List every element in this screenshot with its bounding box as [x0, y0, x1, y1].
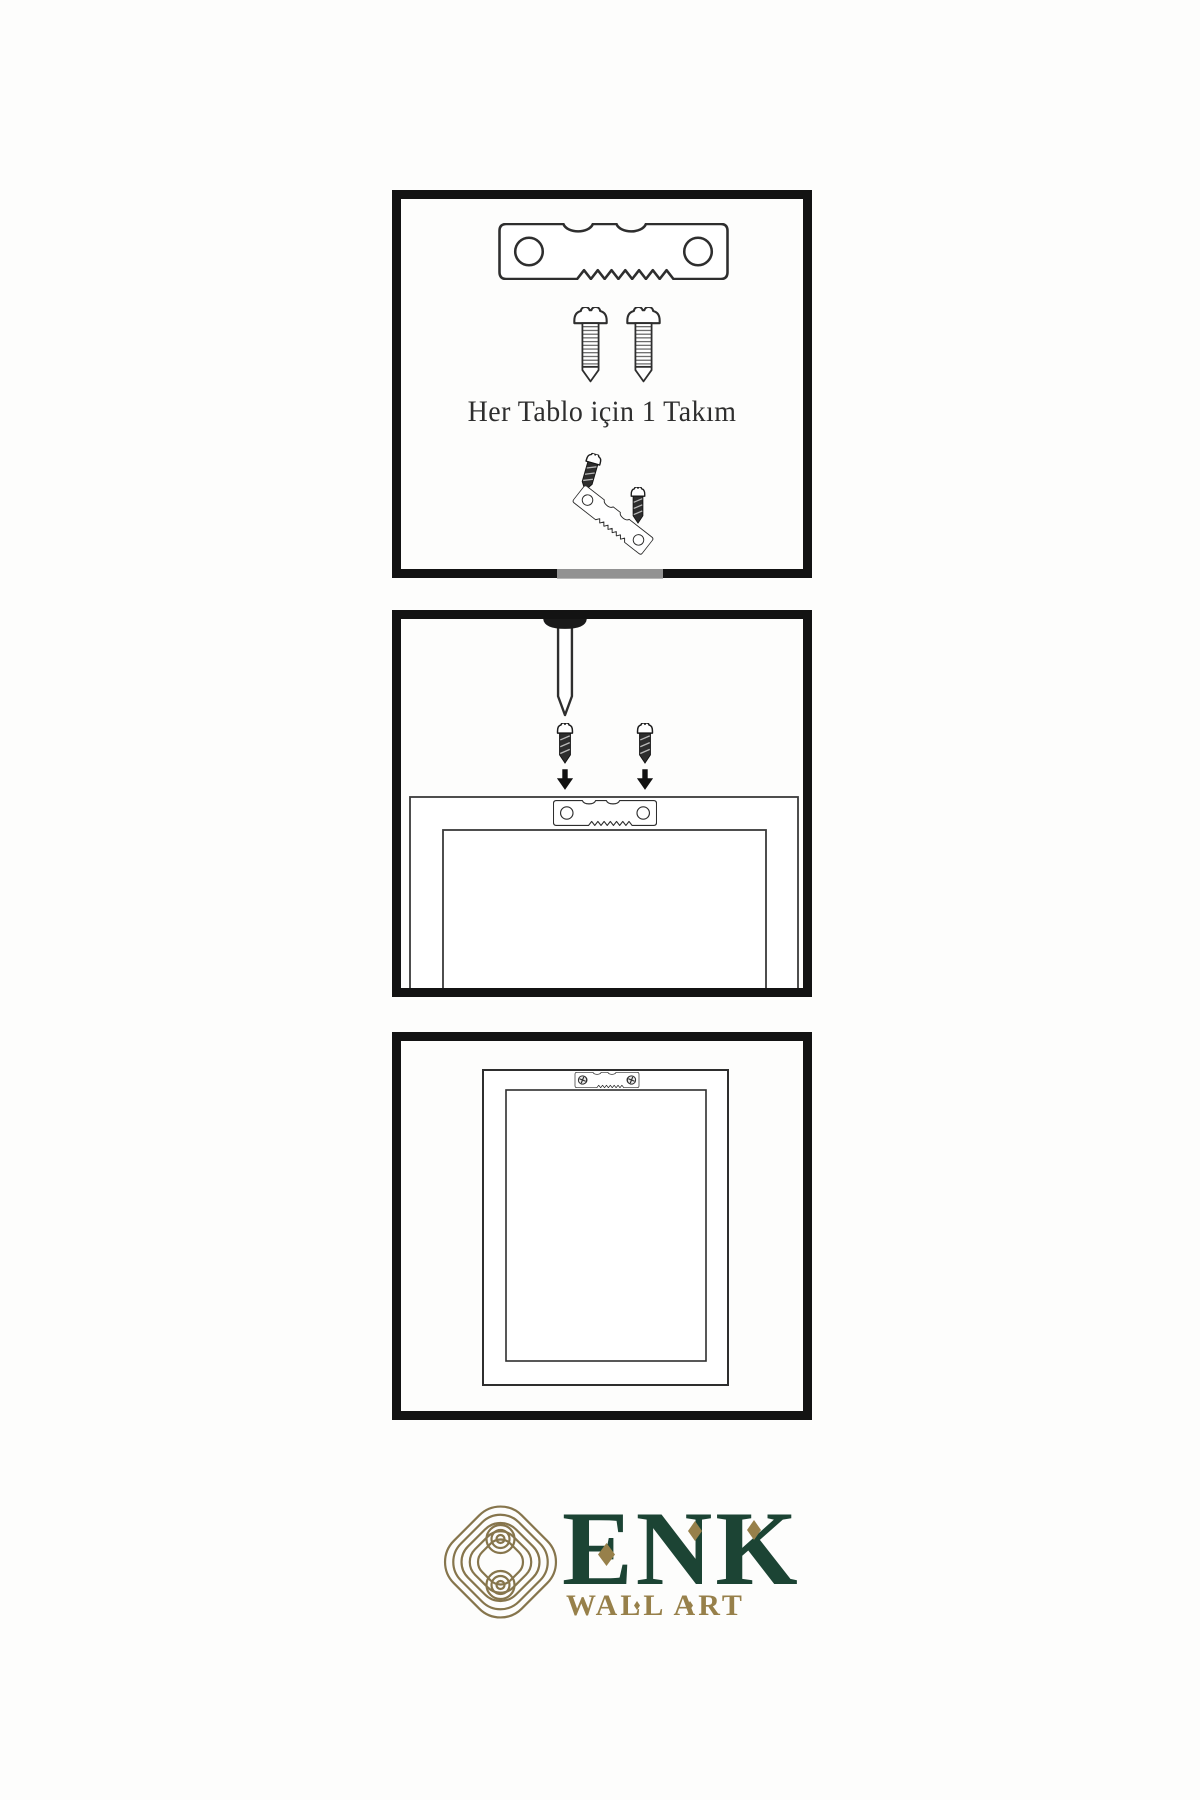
knot-emblem-icon	[438, 1497, 563, 1627]
screw-dark-icon	[638, 723, 653, 763]
down-arrow-icon	[637, 769, 653, 790]
screw-dark-icon	[578, 452, 602, 493]
panel-attach-hanger	[392, 610, 812, 997]
mounted-frame-illustration	[401, 1041, 803, 1411]
down-arrow-icon	[557, 769, 573, 790]
screw-dark-icon	[558, 723, 573, 763]
border-artifact	[557, 569, 663, 579]
frame-inner	[506, 1090, 706, 1361]
panel-mounted-frame	[392, 1032, 812, 1420]
brand-subtitle: WALL ART	[566, 1591, 796, 1621]
sawtooth-hanger-icon	[553, 801, 656, 826]
panel-hardware-kit: Her Tablo için 1 Takım	[392, 190, 812, 578]
phillips-screw-icon	[627, 1076, 636, 1085]
phillips-screw-icon	[578, 1076, 587, 1085]
brand-name: ENK	[562, 1496, 792, 1602]
frame-back-inner	[443, 830, 766, 988]
screw-dark-icon	[631, 487, 644, 523]
screw-icon	[627, 307, 659, 381]
screw-icon	[574, 307, 606, 381]
kit-caption: Her Tablo için 1 Takım	[423, 395, 780, 429]
sawtooth-hanger-icon	[500, 224, 728, 279]
attach-hanger-illustration	[401, 619, 803, 988]
wall-nail-icon	[543, 619, 587, 715]
hardware-kit-illustration	[401, 199, 803, 569]
instruction-sheet: Her Tablo için 1 Takım	[0, 0, 1200, 1800]
